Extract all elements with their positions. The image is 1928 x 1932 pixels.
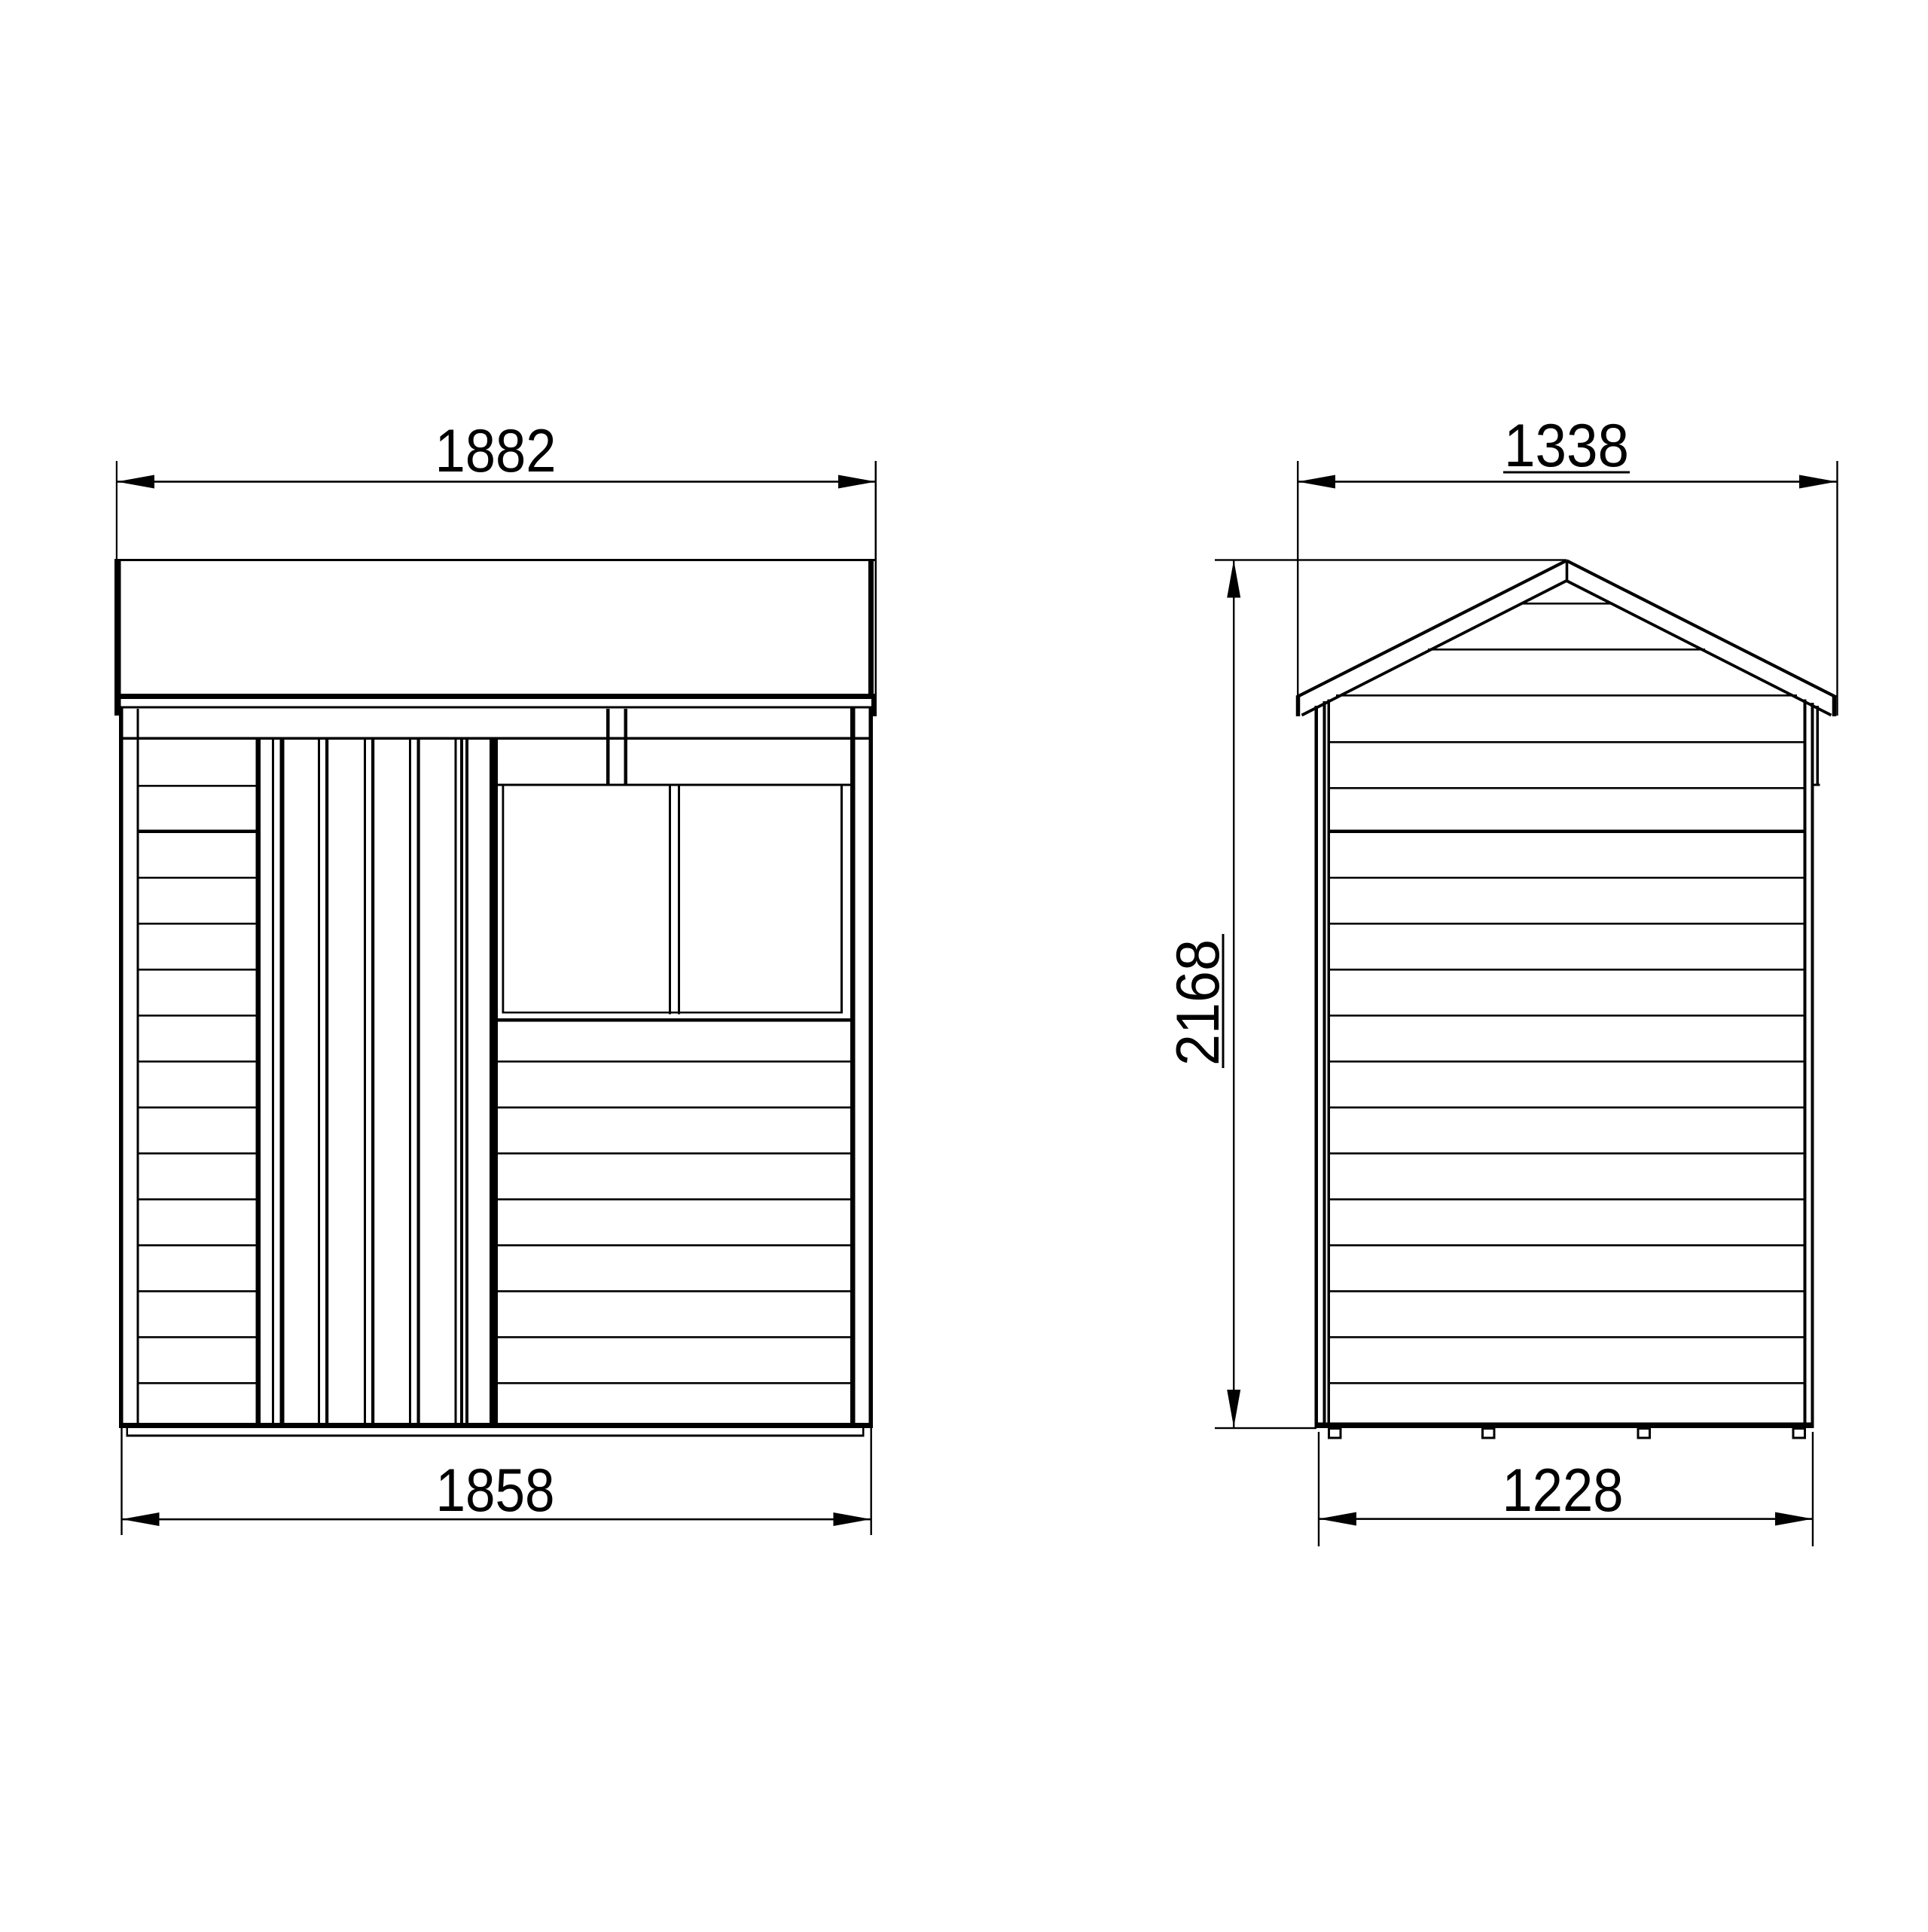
svg-text:1882: 1882 [435,417,557,485]
svg-text:1858: 1858 [436,1457,555,1525]
svg-text:1338: 1338 [1504,412,1629,480]
svg-text:1228: 1228 [1502,1457,1624,1525]
